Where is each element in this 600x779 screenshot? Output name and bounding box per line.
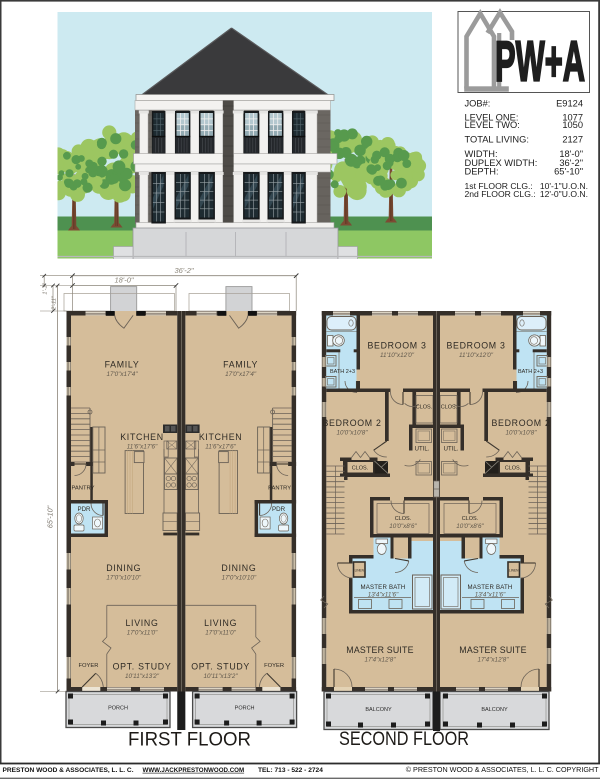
svg-text:PDR: PDR: [272, 506, 286, 513]
svg-text:FAMILY: FAMILY: [105, 360, 140, 370]
svg-text:12'-0"U.O.N.: 12'-0"U.O.N.: [540, 189, 588, 199]
svg-text:TOTAL LIVING:: TOTAL LIVING:: [465, 134, 529, 144]
svg-text:OPT. STUDY: OPT. STUDY: [191, 662, 250, 672]
svg-text:CLOS.: CLOS.: [505, 466, 522, 472]
svg-text:LINEN: LINEN: [509, 569, 519, 573]
svg-text:2127: 2127: [562, 134, 583, 144]
svg-text:13'4"x11'6": 13'4"x11'6": [368, 592, 399, 599]
svg-text:10'0"x8'6": 10'0"x8'6": [389, 523, 417, 530]
svg-text:PORCH: PORCH: [108, 706, 128, 712]
svg-text:DINING: DINING: [221, 563, 256, 573]
svg-text:PORCH: PORCH: [235, 706, 255, 712]
svg-text:MASTER BATH: MASTER BATH: [360, 584, 405, 591]
svg-text:2nd FLOOR CLG.:: 2nd FLOOR CLG.:: [465, 189, 536, 199]
svg-text:KITCHEN: KITCHEN: [120, 432, 164, 442]
svg-text:BATH 2+3: BATH 2+3: [518, 369, 543, 375]
svg-text:17'4"x12'8": 17'4"x12'8": [477, 657, 509, 664]
svg-text:BEDROOM 3: BEDROOM 3: [367, 341, 426, 351]
svg-text:WWW.JACKPRESTONWOOD.COM: WWW.JACKPRESTONWOOD.COM: [143, 767, 245, 774]
svg-text:65'-10": 65'-10": [554, 167, 583, 177]
svg-text:SECOND FLOOR: SECOND FLOOR: [339, 729, 469, 750]
svg-text:UTIL.: UTIL.: [444, 447, 459, 453]
svg-text:CLOS.: CLOS.: [395, 516, 412, 522]
svg-text:10'0"x10'8": 10'0"x10'8": [336, 429, 368, 436]
svg-text:FAMILY: FAMILY: [223, 360, 258, 370]
svg-text:LINEN: LINEN: [355, 569, 365, 573]
svg-text:CLOS.: CLOS.: [416, 405, 433, 411]
svg-text:17'0"x10'10": 17'0"x10'10": [222, 575, 257, 582]
svg-text:2'-11": 2'-11": [52, 295, 58, 311]
svg-text:10'0"x8'6": 10'0"x8'6": [456, 523, 484, 530]
svg-text:BEDROOM 3: BEDROOM 3: [446, 341, 505, 351]
svg-text:BEDROOM 2: BEDROOM 2: [322, 418, 381, 428]
svg-text:UTIL.: UTIL.: [415, 447, 430, 453]
svg-text:BALCONY: BALCONY: [365, 707, 392, 713]
svg-text:17'4"x12'8": 17'4"x12'8": [364, 657, 396, 664]
svg-text:17'0"x11'0": 17'0"x11'0": [205, 629, 236, 636]
svg-text:TEL: 713 - 522 - 2724: TEL: 713 - 522 - 2724: [258, 767, 323, 774]
svg-text:17'0"x17'4": 17'0"x17'4": [106, 371, 138, 378]
svg-text:PDR: PDR: [77, 506, 91, 513]
svg-text:BALCONY: BALCONY: [481, 707, 508, 713]
svg-text:1050: 1050: [562, 120, 583, 130]
svg-text:FIRST FLOOR: FIRST FLOOR: [128, 730, 251, 751]
svg-text:11'10"x12'0": 11'10"x12'0": [380, 352, 415, 359]
svg-text:© PRESTON WOOD & ASSOCIATES, L: © PRESTON WOOD & ASSOCIATES, L. L. C. CO…: [406, 765, 599, 774]
svg-text:E9124: E9124: [556, 99, 583, 109]
svg-text:10'11"x13'2": 10'11"x13'2": [204, 673, 239, 680]
svg-text:MASTER SUITE: MASTER SUITE: [346, 645, 413, 655]
svg-text:36'-2": 36'-2": [174, 266, 193, 275]
svg-text:BEDROOM 2: BEDROOM 2: [491, 418, 550, 428]
svg-text:MASTER BATH: MASTER BATH: [467, 584, 512, 591]
svg-text:CLOS.: CLOS.: [441, 405, 458, 411]
svg-text:LEVEL TWO:: LEVEL TWO:: [465, 120, 520, 130]
svg-text:PANTRY: PANTRY: [268, 486, 291, 492]
svg-text:10'0"x10'8": 10'0"x10'8": [505, 429, 537, 436]
svg-text:LIVING: LIVING: [125, 618, 158, 628]
svg-text:17'0"x11'0": 17'0"x11'0": [127, 629, 158, 636]
svg-text:FOYER: FOYER: [79, 663, 99, 669]
svg-text:PW+A: PW+A: [495, 30, 585, 94]
svg-text:DEPTH:: DEPTH:: [465, 167, 499, 177]
svg-text:17'0"x17'4": 17'0"x17'4": [225, 371, 257, 378]
svg-text:11'6"x17'6": 11'6"x17'6": [205, 443, 236, 450]
svg-text:17'0"x10'10": 17'0"x10'10": [106, 575, 141, 582]
svg-text:DINING: DINING: [106, 563, 141, 573]
svg-text:MASTER SUITE: MASTER SUITE: [459, 645, 526, 655]
svg-text:11'6"x17'6": 11'6"x17'6": [127, 443, 158, 450]
svg-text:18'-0": 18'-0": [114, 276, 133, 285]
svg-text:10'11"x13'2": 10'11"x13'2": [125, 673, 160, 680]
svg-text:PRESTON WOOD & ASSOCIATES, L.: PRESTON WOOD & ASSOCIATES, L. L. C.: [3, 767, 134, 774]
svg-text:LIVING: LIVING: [204, 618, 237, 628]
svg-text:OPT. STUDY: OPT. STUDY: [113, 662, 172, 672]
svg-text:11'10"x12'0": 11'10"x12'0": [459, 352, 494, 359]
svg-text:JOB#:: JOB#:: [465, 99, 491, 109]
svg-text:FOYER: FOYER: [264, 663, 284, 669]
svg-text:PANTRY: PANTRY: [72, 486, 95, 492]
svg-text:1'-1": 1'-1": [43, 282, 49, 294]
svg-text:65'-10": 65'-10": [46, 505, 55, 528]
svg-text:CLOS.: CLOS.: [352, 466, 369, 472]
svg-text:BATH 2+3: BATH 2+3: [330, 369, 355, 375]
svg-text:CLOS.: CLOS.: [462, 516, 479, 522]
svg-text:KITCHEN: KITCHEN: [199, 432, 243, 442]
svg-text:13'4"x11'6": 13'4"x11'6": [475, 592, 506, 599]
